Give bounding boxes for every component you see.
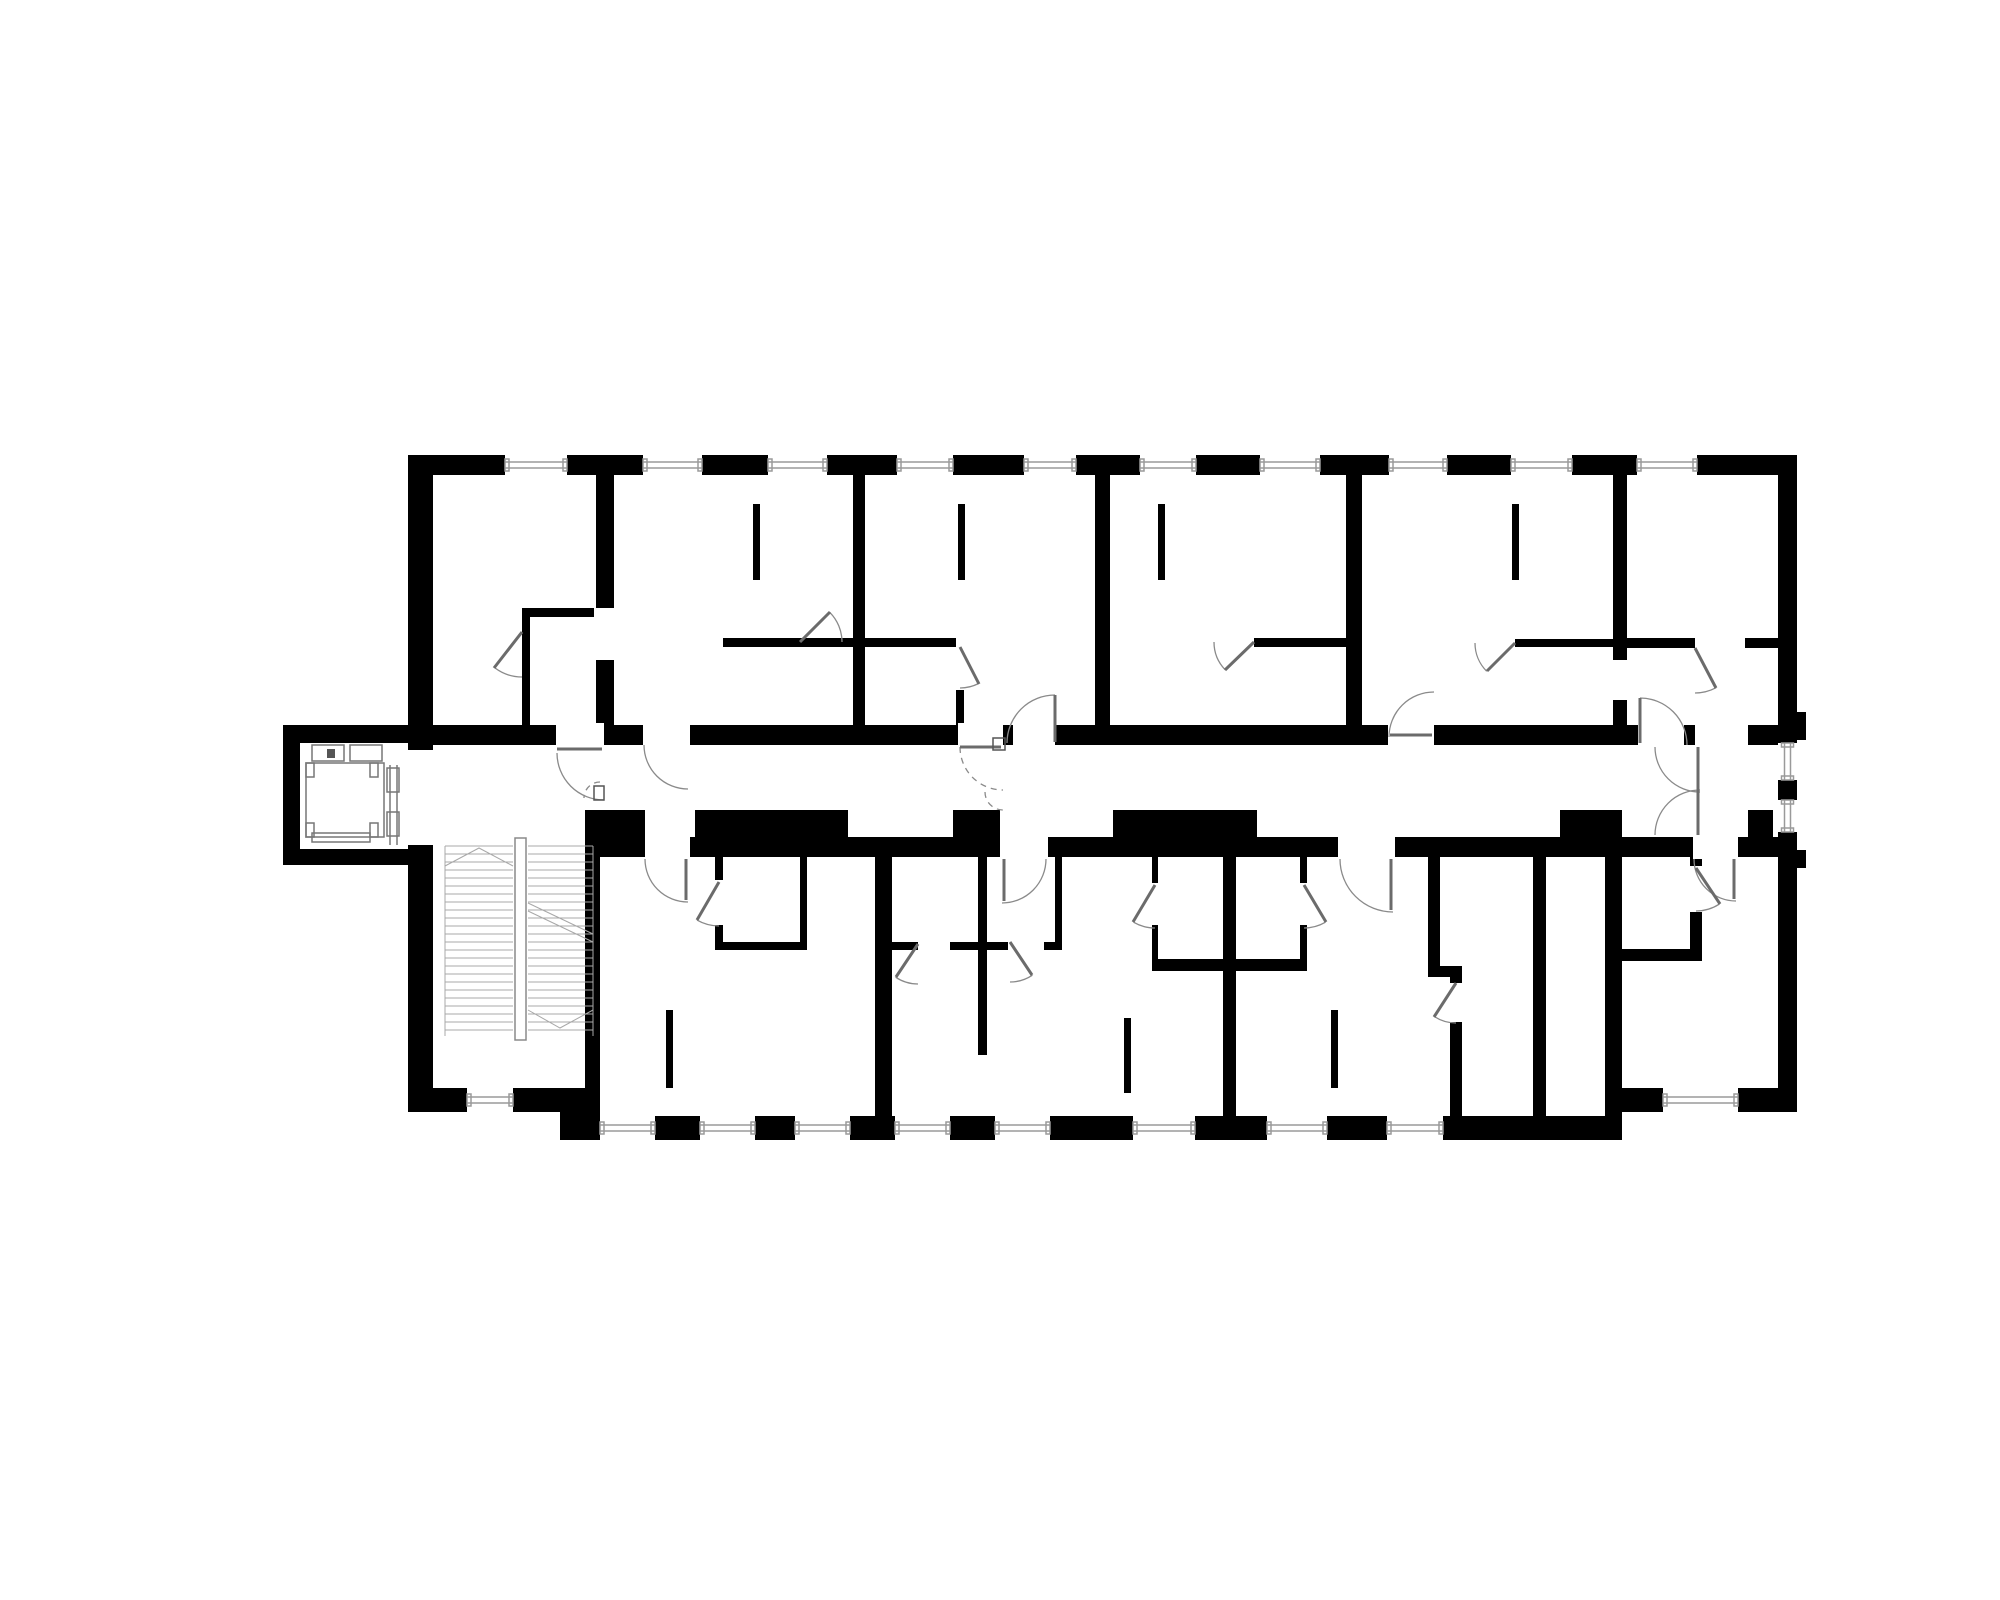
door-opening [1000,835,1048,859]
window-opening [1024,455,1076,475]
window-opening [643,455,702,475]
door-swing-arc [1655,747,1700,792]
wall-segment [753,504,760,580]
wall-segment [597,837,1778,857]
wall-segment [1346,475,1362,725]
window-opening [1663,1088,1738,1112]
door-swing-arc [644,745,688,789]
door-opening [594,608,616,660]
door-opening [958,723,1003,747]
window-opening [1511,455,1572,475]
window-opening [768,455,827,475]
stair-direction-arrow [528,1010,593,1028]
elevator-guide [370,823,378,837]
wall-segment [1795,850,1806,868]
door-swing-arc-dashed [960,747,1003,790]
wall-segment [1748,810,1773,857]
wall-segment [1605,1088,1622,1140]
wall-segment [1254,638,1346,647]
wall-segment [666,1010,673,1088]
elevator-machine [350,745,382,761]
wall-segment [978,857,987,1055]
door-swing-arc [645,859,688,902]
wall-segment [522,608,598,617]
door-opening [1448,983,1464,1022]
door-swing-arc [1002,859,1046,903]
door-swing-arc [896,977,918,984]
floor-plan-drawing [0,0,2000,1600]
window-opening [1637,455,1697,475]
wall-segment [1236,959,1307,971]
door-opening [1013,723,1055,747]
window-opening [467,1088,513,1112]
window-opening [1267,1116,1327,1140]
wall-segment [723,638,853,647]
elevator-guide [306,823,314,837]
door-swing-arc [557,753,604,800]
door-leaf [960,647,979,684]
door-opening [1695,723,1748,747]
wall-segment [958,504,965,580]
elevator-guide [306,763,314,777]
stair-handrail [515,838,526,1040]
wall-segment [283,725,300,865]
wall-segment [956,690,964,725]
door-swing-arc [495,668,522,677]
window-opening [700,1116,755,1140]
elevator-car [306,763,384,837]
window-opening [1778,743,1797,780]
door-swing-arc [1340,859,1393,912]
door-opening [645,835,690,859]
door-swing-arc [1214,642,1225,670]
door-leaf [800,612,830,642]
wall-segment [1560,810,1622,837]
door-swing-arc-dashed [584,782,600,798]
wall-segment [1533,857,1546,1116]
door-stop-mark [594,786,604,800]
window-opening [600,1116,655,1140]
wall-segment [853,475,865,725]
wall-segment [283,849,408,865]
wall-segment [1627,638,1695,648]
window-opening [1260,455,1320,475]
door-leaf [1695,648,1716,688]
wall-segment [1428,966,1462,977]
wall-segment [408,725,1778,745]
wall-segment [1515,639,1613,647]
door-leaf [494,632,522,668]
wall-segment [596,475,614,725]
stair-direction-arrow [445,848,513,866]
wall-segment [715,942,807,950]
door-leaf [1225,642,1254,670]
door-swing-arc [960,684,979,689]
wall-segment [522,608,530,725]
elevator-machine-mark [327,749,335,758]
walls-layer [283,455,1806,1140]
door-swing-arc [1475,643,1487,671]
wall-segment [1152,959,1223,971]
wall-segment [408,455,1797,475]
door-swing-arc [1010,975,1032,982]
wall-segment [1095,475,1110,725]
window-opening [895,1116,950,1140]
wall-segment [283,725,408,743]
floor-plan-canvas [0,0,2000,1600]
door-opening [643,723,690,747]
door-swing-arc [830,612,842,642]
door-swing-arc [1695,688,1716,693]
door-swing-arc-dashed [985,792,1003,810]
door-opening [556,723,604,747]
window-opening [897,455,953,475]
wall-segment [1605,857,1622,1088]
window-opening [1133,1116,1195,1140]
window-opening [1140,455,1196,475]
window-opening [1387,1116,1443,1140]
wall-segment [1795,712,1806,740]
wall-segment [800,857,807,950]
wall-segment [1622,949,1702,961]
wall-segment [1778,455,1797,1112]
wall-segment [875,857,892,1116]
door-opening [1638,723,1684,747]
door-leaf [1487,643,1515,671]
wall-segment [953,810,1000,837]
window-opening [1389,455,1447,475]
wall-segment [1512,504,1519,580]
door-opening [918,940,950,952]
door-opening [1611,660,1629,700]
door-opening [405,750,436,845]
wall-segment [596,810,645,837]
wall-segment [1113,810,1257,837]
wall-segment [1055,857,1062,950]
wall-segment [865,638,956,647]
window-opening [1778,800,1797,832]
wall-segment [695,810,848,837]
window-opening [505,455,567,475]
staircase [445,838,593,1040]
elevator-symbol [306,745,399,845]
window-opening [995,1116,1050,1140]
elevator-guide [370,763,378,777]
wall-segment [1331,1010,1338,1088]
wall-segment [1223,857,1236,1116]
window-opening [795,1116,850,1140]
wall-segment [1158,504,1165,580]
wall-segment [1428,857,1440,975]
door-opening [1693,835,1738,859]
door-swing-arc [1655,790,1700,835]
wall-segment [1124,1018,1131,1093]
wall-segment [1745,638,1778,648]
door-opening [1338,835,1395,859]
